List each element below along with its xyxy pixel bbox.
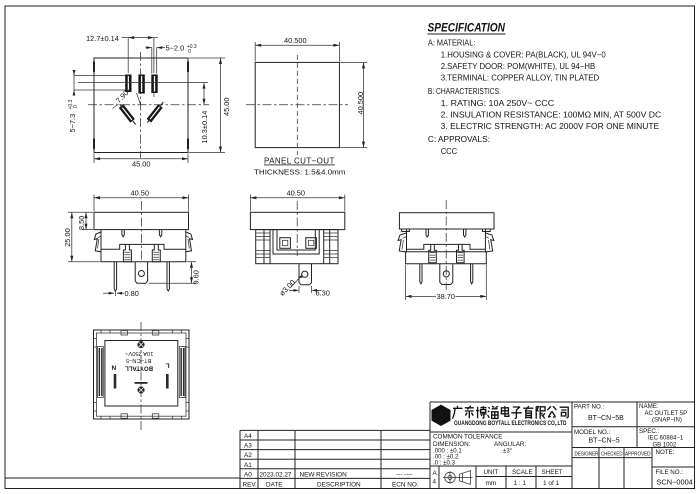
svg-text:±3°: ±3°	[503, 448, 513, 455]
svg-text:6.30: 6.30	[316, 288, 330, 297]
svg-text:38.70: 38.70	[437, 292, 456, 301]
svg-text:8.50: 8.50	[77, 216, 86, 230]
svg-text:SCALE: SCALE	[512, 469, 533, 476]
svg-text:N: N	[112, 365, 117, 372]
svg-text:A1: A1	[244, 462, 252, 469]
svg-text:1 of 1: 1 of 1	[543, 480, 560, 487]
svg-text:SHEET: SHEET	[542, 469, 563, 476]
svg-text:IEC 60884−1: IEC 60884−1	[648, 436, 684, 442]
svg-text:10.3±0.14: 10.3±0.14	[200, 111, 209, 144]
svg-text:1.HOUSING & COVER: PA(BLACK),: 1.HOUSING & COVER: PA(BLACK), UL 94V−0	[441, 50, 607, 59]
svg-text:2023.02.27: 2023.02.27	[260, 471, 292, 478]
svg-text:THICKNESS: 1.5&4.0mm: THICKNESS: 1.5&4.0mm	[254, 168, 346, 177]
svg-text:DESIGNER: DESIGNER	[575, 452, 599, 458]
svg-text:10A 250V~: 10A 250V~	[124, 350, 153, 356]
svg-text:5−7.3: 5−7.3	[68, 114, 77, 133]
svg-text:A0: A0	[244, 471, 252, 478]
svg-text:L: L	[166, 362, 170, 369]
svg-text:BOYTALL: BOYTALL	[125, 365, 153, 371]
svg-text:45.00: 45.00	[132, 160, 151, 169]
svg-text:GB 1002: GB 1002	[653, 442, 677, 448]
svg-text:12.7±0.14: 12.7±0.14	[86, 34, 119, 43]
svg-text:1. RATING: 10A 250V~ CCC: 1. RATING: 10A 250V~ CCC	[441, 99, 555, 108]
svg-text:3.TERMINAL: COPPER ALLOY, TI: 3.TERMINAL: COPPER ALLOY, TIN PLATED	[441, 73, 600, 82]
svg-text:BT−CN−5B: BT−CN−5B	[588, 415, 624, 422]
svg-text:40.500: 40.500	[356, 92, 365, 115]
svg-text:0: 0	[188, 49, 191, 55]
svg-text:ECN NO.: ECN NO.	[392, 482, 419, 489]
svg-text:REV.: REV.	[243, 482, 258, 489]
svg-text:DATE: DATE	[266, 482, 283, 489]
svg-text:NAME:: NAME:	[639, 403, 659, 410]
svg-text:5−2.0: 5−2.0	[166, 44, 185, 53]
svg-text:NEW REVISION: NEW REVISION	[300, 471, 348, 478]
svg-text:40.50: 40.50	[131, 189, 150, 198]
svg-text:CCC: CCC	[441, 147, 458, 156]
svg-text:3. ELECTRIC STRENGTH: AC 20: 3. ELECTRIC STRENGTH: AC 2000V FOR ONE M…	[441, 122, 660, 131]
svg-text:.0 : ±0.3: .0 : ±0.3	[433, 460, 456, 467]
svg-text:MODEL NO.:: MODEL NO.:	[574, 429, 610, 436]
svg-text:S: S	[437, 409, 445, 423]
svg-text:APPROVED: APPROVED	[625, 452, 651, 458]
svg-text:A: MATERIAL:: A: MATERIAL:	[428, 39, 476, 48]
svg-text:UNIT: UNIT	[484, 469, 499, 476]
svg-text:9.60: 9.60	[192, 270, 201, 284]
svg-text:BT−CN−5: BT−CN−5	[126, 357, 152, 363]
svg-text:AC OUTLET 5P: AC OUTLET 5P	[645, 411, 688, 417]
svg-text:--- ----: --- ----	[396, 471, 413, 478]
svg-text:A2: A2	[244, 452, 252, 459]
svg-text:2.SAFETY DOOR: POM(WHITE), UL: 2.SAFETY DOOR: POM(WHITE), UL 94−HB	[441, 62, 596, 71]
svg-text:4: 4	[433, 479, 437, 486]
svg-text:SCN−0004: SCN−0004	[657, 477, 693, 486]
svg-text:0: 0	[73, 105, 79, 108]
svg-text:FILE NO.:: FILE NO.:	[656, 469, 684, 476]
svg-text:BT−CN−5: BT−CN−5	[589, 438, 620, 445]
svg-text:40.50: 40.50	[287, 189, 306, 198]
svg-text:B: CHARACTERISTICS:: B: CHARACTERISTICS:	[428, 87, 501, 96]
svg-text:CHECKED: CHECKED	[601, 452, 623, 458]
svg-text:mm: mm	[486, 480, 497, 487]
svg-text:A3: A3	[244, 443, 252, 450]
svg-text:45.00: 45.00	[222, 98, 231, 117]
svg-text:NOTE:: NOTE:	[656, 449, 675, 456]
svg-text:C: APPROVALS:: C: APPROVALS:	[428, 135, 490, 144]
svg-text:SPECIFICATION: SPECIFICATION	[428, 23, 506, 35]
svg-text:DESCRIPTION: DESCRIPTION	[317, 482, 361, 489]
svg-text:40.500: 40.500	[284, 36, 307, 45]
svg-text:A4: A4	[244, 433, 252, 440]
svg-text:(SNAP−IN): (SNAP−IN)	[652, 417, 682, 423]
svg-text:GUANGDONG BOYTALL ELECTRONICS: GUANGDONG BOYTALL ELECTRONICS CO,.LTD	[454, 420, 567, 427]
svg-text:25.00: 25.00	[63, 228, 72, 247]
svg-text:1 : 1: 1 : 1	[514, 480, 527, 487]
svg-text:COMMON TOLERANCE: COMMON TOLERANCE	[433, 434, 502, 441]
svg-text:0.80: 0.80	[125, 289, 139, 298]
svg-text:2. INSULATION RESISTANCE: 1: 2. INSULATION RESISTANCE: 100MΩ MIN, AT …	[441, 110, 662, 119]
svg-text:PANEL CUT−OUT: PANEL CUT−OUT	[264, 157, 335, 166]
svg-text:SPEC.:: SPEC.:	[639, 428, 660, 435]
svg-text:PART NO.:: PART NO.:	[574, 403, 605, 410]
